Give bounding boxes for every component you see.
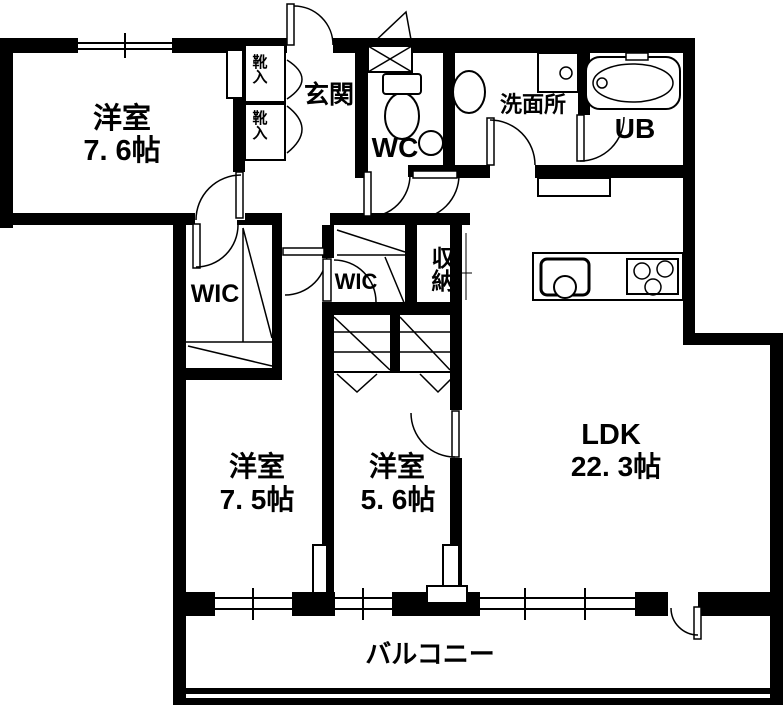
kitchen bbox=[533, 253, 683, 300]
wc-label: WC bbox=[372, 132, 419, 163]
wic1-label: WIC bbox=[191, 280, 240, 308]
entrance-label: 玄関 bbox=[304, 80, 354, 109]
faucet-icon bbox=[560, 67, 572, 79]
shoe-cabinet2-label: 靴入 bbox=[251, 109, 268, 140]
bedroom1-door-leaf bbox=[236, 172, 243, 218]
balcony-step bbox=[427, 586, 467, 603]
stove-icon bbox=[627, 259, 678, 294]
bath-tray bbox=[626, 53, 648, 60]
entrance-door-leaf bbox=[287, 4, 294, 45]
wic1-door-leaf bbox=[193, 224, 200, 268]
balcony-label: バルコニー bbox=[365, 639, 494, 669]
linen-cabinet bbox=[538, 178, 610, 196]
bath-door-leaf bbox=[577, 115, 584, 161]
hand-basin-icon bbox=[419, 131, 443, 155]
bedroom1-size: 7. 6帖 bbox=[83, 134, 160, 167]
drain-icon bbox=[554, 276, 576, 298]
floor-plan-drawing: 洋室 7. 6帖 玄関 WC 洗面所 UB WIC WIC 収納 靴入 靴入 洋… bbox=[0, 0, 783, 705]
bath-label: UB bbox=[615, 113, 655, 144]
bedroom3-size: 5. 6帖 bbox=[361, 484, 436, 515]
bedroom3-door-leaf bbox=[452, 411, 459, 457]
bedroom1-label: 洋室 bbox=[93, 101, 151, 135]
pillar bbox=[313, 545, 327, 593]
duct-column bbox=[227, 50, 243, 98]
shoe-cabinet1-label: 靴入 bbox=[251, 53, 268, 84]
bedroom2-door-leaf bbox=[283, 248, 324, 255]
wic2-door-leaf bbox=[323, 259, 331, 301]
washroom-door-leaf bbox=[487, 118, 494, 165]
floor-plan: 洋室 7. 6帖 玄関 WC 洗面所 UB WIC WIC 収納 靴入 靴入 洋… bbox=[0, 0, 783, 705]
bedroom3-label: 洋室 bbox=[369, 450, 425, 482]
wc-door-leaf bbox=[364, 172, 371, 216]
bedroom2-size: 7. 5帖 bbox=[220, 484, 295, 515]
ldk-label: LDK bbox=[581, 419, 641, 451]
ldk-size: 22. 3帖 bbox=[571, 451, 661, 482]
storage-label: 収納 bbox=[428, 246, 455, 293]
hall-door-leaf bbox=[413, 171, 457, 178]
bedroom2-label: 洋室 bbox=[229, 450, 285, 482]
bathtub-icon bbox=[586, 57, 680, 109]
toilet-tank-icon bbox=[383, 74, 421, 94]
wic2-label: WIC bbox=[335, 269, 378, 294]
washing-machine-icon bbox=[453, 71, 485, 113]
washroom-label: 洗面所 bbox=[500, 92, 566, 117]
